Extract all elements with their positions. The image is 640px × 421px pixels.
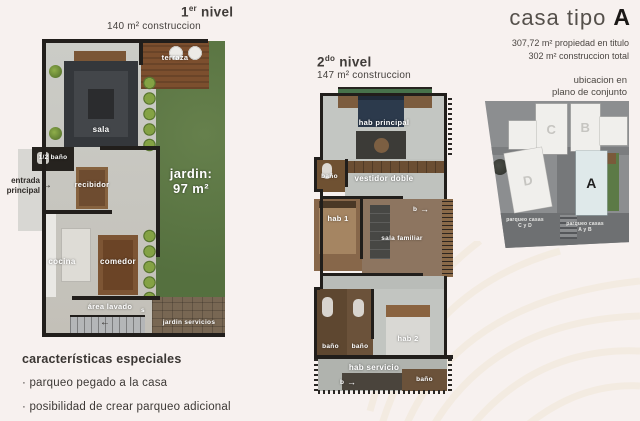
location-heading-line2: plano de conjunto (552, 87, 627, 99)
terraza-label: terraza (141, 54, 209, 63)
level2-title-word: nivel (339, 55, 371, 70)
sala-label: sala (81, 125, 121, 134)
wall-segment (320, 93, 323, 159)
building-a-label: A (586, 175, 597, 191)
level1-title: 1er nivel (181, 4, 233, 20)
brochure-page: { "header": { "title_prefix": "casa tipo… (0, 0, 640, 421)
wall-segment (320, 93, 447, 96)
sala-familiar-label: sala familiar (372, 235, 432, 242)
parking-cd-label: parqueo casas C y D (504, 217, 546, 230)
jardin-servicios-label: jardin servicios (158, 319, 220, 326)
feature-item-text: posibilidad de crear parqueo adicional (29, 401, 230, 413)
wall-segment (100, 146, 160, 150)
page-title-prefix: casa tipo (509, 5, 606, 31)
entrada-label-line2: principal (6, 186, 40, 196)
parking-ab-line2: A y B (564, 227, 606, 233)
level2-title: 2do nivel (317, 54, 372, 70)
plant-icon (49, 127, 62, 140)
wall-segment (42, 210, 112, 214)
service-garden-pavers (152, 297, 225, 335)
building-b-wing (600, 117, 627, 145)
level1-title-ordinal: er (189, 4, 197, 13)
wall-segment (314, 355, 453, 359)
entrada-principal-label: entrada principal (6, 176, 40, 195)
hab2-bed (386, 305, 430, 359)
stairs-down-arrow-icon: ← (100, 317, 110, 328)
stat-construccion: 302 m² construccion total (512, 50, 629, 63)
feature-item-text: parqueo pegado a la casa (29, 377, 167, 389)
features-heading: características especiales (22, 352, 182, 366)
wall-segment (444, 276, 447, 359)
level2-subtitle: 147 m² construccion (317, 70, 411, 81)
floorplan-level1: ← terraza sala 1/2 baño recibidor jardin… (42, 39, 225, 337)
entrada-arrow-icon: → (42, 180, 52, 191)
building-b-label: B (581, 120, 591, 135)
wall-segment (323, 196, 403, 199)
recibidor-label: recibidor (67, 181, 117, 190)
stair-s-label: s (141, 307, 145, 314)
building-c-wing (509, 121, 536, 149)
parking-ab-label: parqueo casas A y B (564, 221, 606, 234)
wall-segment (42, 333, 225, 337)
building-c-label: C (547, 122, 557, 137)
wall-segment (323, 273, 423, 276)
building-d: D (504, 147, 552, 213)
terrace-edge-hatch (448, 359, 452, 391)
hedge-row-lower (142, 228, 157, 300)
stair-bottom-label: b (340, 379, 344, 386)
terrace-edge-hatch (314, 359, 318, 391)
cocina-label: cocina (42, 257, 82, 266)
hab-principal-pouf (374, 138, 389, 153)
feature-item: · parqueo pegado a la casa (22, 377, 167, 389)
level1-subtitle: 140 m² construccion (107, 21, 201, 32)
bano-principal-label: baño (314, 173, 345, 180)
bano3-label: baño (345, 343, 375, 350)
terrace-edge-hatch (448, 95, 452, 155)
stairs-level2 (442, 199, 453, 277)
wall-segment (360, 199, 363, 259)
wall-segment (42, 39, 208, 43)
feature-item: · posibilidad de crear parqueo adicional (22, 401, 231, 413)
level2-title-num: 2 (317, 55, 325, 70)
vestidor-label: vestidor doble (347, 174, 421, 183)
location-heading-line1: ubicacion en (552, 75, 627, 87)
area-lavado-label: área lavado (82, 303, 138, 312)
sala-center-table (88, 89, 114, 119)
hallway-floor (320, 276, 447, 289)
hab1-label: hab 1 (314, 215, 362, 224)
building-a-highlighted: A (576, 151, 607, 215)
bano3-fixture (353, 299, 364, 317)
hab-principal-label: hab principal (351, 119, 417, 128)
hab2-label: hab 2 (380, 335, 436, 344)
property-stats: 307,72 m² propiedad en titulo 302 m² con… (512, 37, 629, 62)
parking-cd-line2: C y D (504, 223, 546, 229)
wall-segment (156, 149, 160, 257)
bullet-icon: · (22, 377, 26, 389)
vestidor-wardrobes (345, 161, 445, 173)
page-title: casa tipo A (509, 4, 631, 31)
comedor-label: comedor (94, 257, 142, 266)
entrada-label-line1: entrada (6, 176, 40, 186)
kitchen-island (62, 229, 90, 281)
location-heading: ubicacion en plano de conjunto (552, 75, 627, 98)
terrace-edge-hatch (318, 390, 447, 394)
bullet-icon: · (22, 401, 26, 413)
level1-title-word: nivel (201, 5, 233, 20)
level1-title-num: 1 (181, 5, 189, 20)
wall-segment (444, 93, 447, 199)
jardin-label-line1: jardin: (160, 167, 222, 182)
bano2-label: baño (314, 343, 347, 350)
stair-top-arrow-icon: → (420, 204, 429, 214)
jardin-label-line2: 97 m² (160, 182, 222, 197)
hedge-row-upper (142, 75, 157, 152)
sala-familiar-sofa (370, 205, 390, 259)
hab1-bed (319, 201, 356, 254)
stair-top-label: b (413, 206, 417, 213)
wall-segment (72, 296, 160, 300)
stat-propiedad: 307,72 m² propiedad en titulo (512, 37, 629, 50)
building-b: B (571, 104, 600, 151)
bano2-fixture (322, 297, 333, 317)
level2-title-ordinal: do (325, 54, 335, 63)
site-plan: C B D A parqueo casas C y D parqueo casa… (482, 101, 629, 248)
wall-segment (371, 289, 374, 339)
jardin-label: jardin: 97 m² (160, 167, 222, 197)
half-bath-label: 1/2 baño (32, 154, 74, 161)
bano-servicio-label: baño (402, 376, 447, 383)
hab-servicio-label: hab servicio (342, 363, 406, 372)
page-title-letter: A (613, 4, 631, 31)
building-d-label: D (522, 172, 534, 188)
stair-bottom-arrow-icon: → (347, 377, 356, 387)
floorplan-level2: hab principal baño vestidor doble hab 1 … (314, 87, 453, 394)
plant-icon (49, 65, 62, 78)
